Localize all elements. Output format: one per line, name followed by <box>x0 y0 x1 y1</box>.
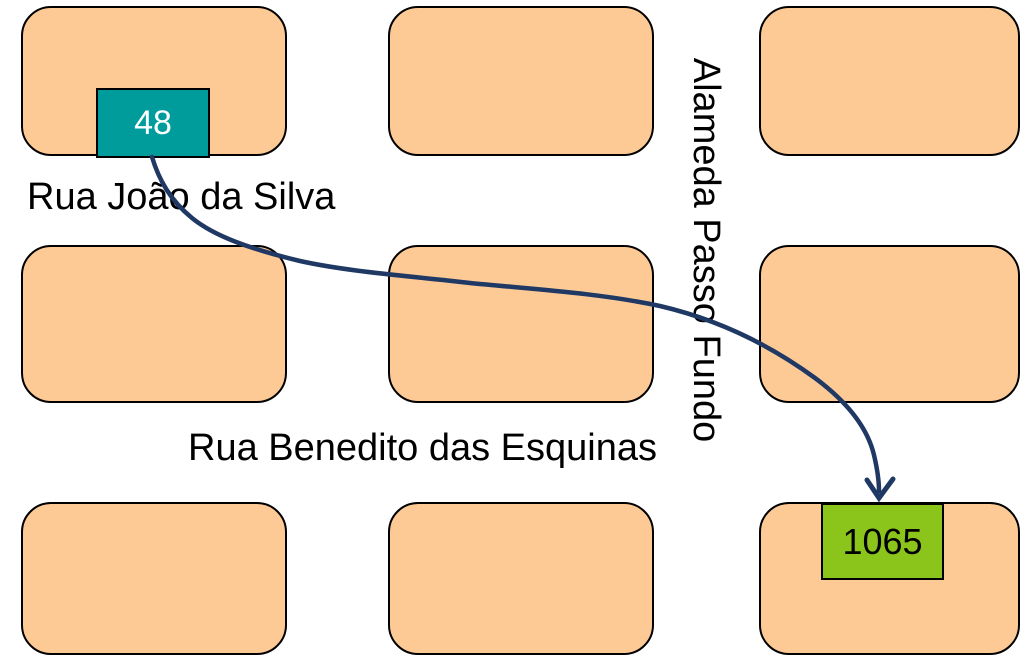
street-label-rua-joao-da-silva: Rua João da Silva <box>27 178 335 216</box>
route-arrowhead-icon <box>867 479 893 498</box>
street-map-diagram: 48 1065 Rua João da Silva Rua Benedito d… <box>0 0 1024 660</box>
city-block <box>388 502 654 655</box>
street-label-rua-benedito-das-esquinas: Rua Benedito das Esquinas <box>188 429 657 467</box>
origin-house-marker: 48 <box>96 88 210 158</box>
city-block <box>388 245 654 403</box>
city-block <box>759 6 1020 156</box>
street-label-alameda-passo-fundo: Alameda Passo Fundo <box>687 58 725 442</box>
destination-house-number: 1065 <box>842 521 922 563</box>
city-block <box>388 6 654 156</box>
city-block <box>759 245 1020 403</box>
city-block <box>21 245 287 403</box>
city-block <box>21 502 287 655</box>
destination-house-marker: 1065 <box>821 503 944 580</box>
origin-house-number: 48 <box>134 104 172 143</box>
